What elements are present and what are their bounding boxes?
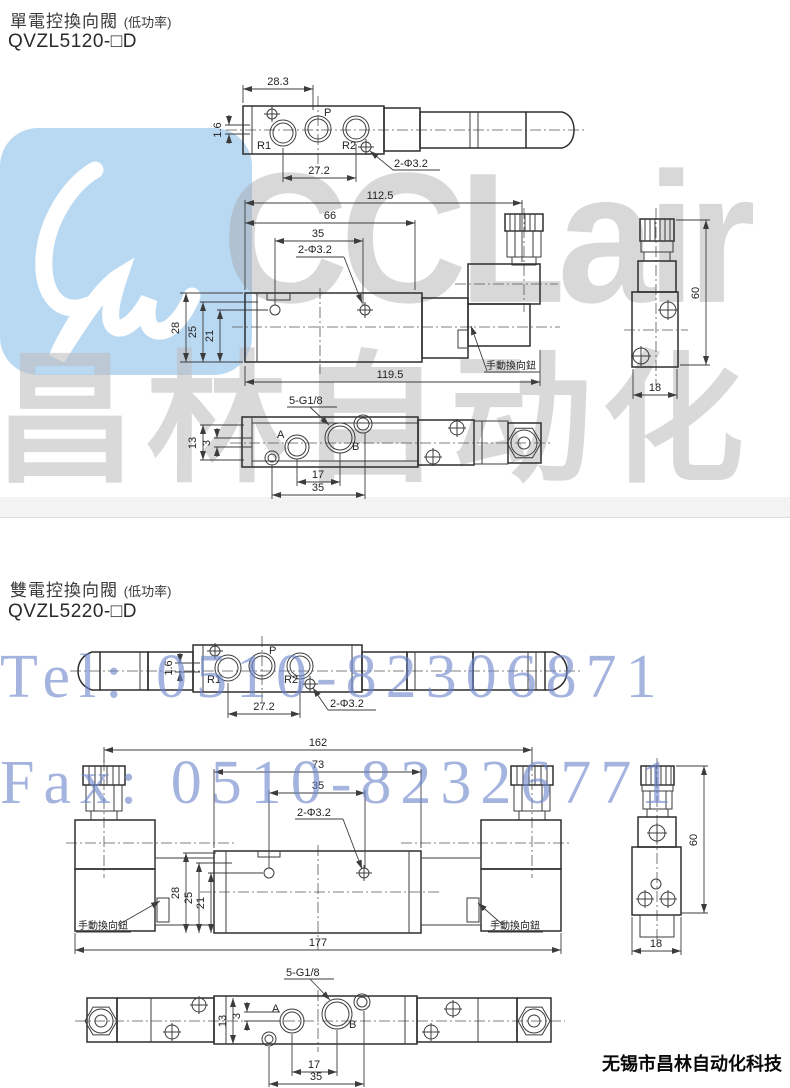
port-label: B [352,441,359,453]
dim-label: 25 [183,892,195,904]
section2-title: 雙電控換向閥 (低功率) [10,576,171,601]
dim-label: 21 [204,330,216,342]
port-label: R2 [342,140,356,152]
callout-label: 5-G1/8 [286,967,320,979]
dim-label: 25 [187,326,199,338]
dim-label: 60 [688,834,700,846]
section1-title: 單電控換向閥 (低功率) [10,7,171,32]
callout-label: 5-G1/8 [289,395,323,407]
port-label: A [272,1003,280,1015]
dim-label: 162 [309,737,327,749]
dim-label: 1.6 [212,122,224,137]
port-label: R1 [257,140,271,152]
dim-label: 35 [310,1071,322,1083]
dim-label: 66 [324,210,336,222]
dim-label: 35 [312,228,324,240]
port-label: B [349,1019,356,1031]
dim-label: 27.2 [308,165,329,177]
dim-label: 35 [312,482,324,494]
dim-label: 3 [231,1013,243,1019]
dim-label: 60 [690,287,702,299]
dim-label: 21 [195,897,207,909]
dim-label: 17 [308,1059,320,1071]
dim-label: 177 [309,937,327,949]
dim-label: 18 [649,382,661,394]
qvzl5120-side-view: 60 18 [624,208,710,399]
qvzl5220-bottom-view: 5-G1/8 13 3 A B 17 35 [75,967,565,1087]
dim-label: 3 [201,440,213,446]
port-label: P [324,107,331,119]
watermark-fax: Fax: 0510-82326771 [0,752,790,814]
dim-label: 13 [217,1015,229,1027]
dim-label: 119.5 [377,369,404,381]
section1-title-text: 單電控換向閥 [10,12,118,31]
port-label: A [277,429,285,441]
section2-model: QVZL5220-□D [8,601,137,623]
section1-model: QVZL5120-□D [8,31,137,53]
dim-label: 18 [650,938,662,950]
dim-label: 28.3 [267,76,288,88]
section2-title-note: (低功率) [124,584,172,599]
callout-label: 2-Φ3.2 [298,244,332,256]
manual-override-label: 手動換向鈕 [486,359,536,372]
section2-title-text: 雙電控換向閥 [10,581,118,600]
manual-override-label: 手動換向鈕 [490,919,540,932]
qvzl5120-front-view: 112.5 66 35 2-Φ3.2 28 25 21 119.5 [170,190,560,386]
dim-label: 28 [170,322,182,334]
technical-drawing: 28.3 1.6 27.2 2-Φ3.2 R1 P R2 [0,0,790,1088]
dim-label: 13 [187,437,199,449]
dim-label: 112.5 [367,190,394,202]
callout-label: 2-Φ3.2 [394,158,428,170]
watermark-tel: Tel: 0510-82306871 [0,646,790,708]
section1-title-note: (低功率) [124,15,172,30]
datasheet-page: CCLair 昌林自动化 Tel: 0510-82306871 Fax: 051… [0,0,790,1088]
qvzl5120-top-view: 28.3 1.6 27.2 2-Φ3.2 R1 P R2 [212,76,584,182]
footer-company: 无锡市昌林自动化科技 [602,1050,782,1076]
manual-override-label: 手動換向鈕 [78,919,128,932]
dim-label: 28 [170,887,182,899]
dim-label: 17 [312,469,324,481]
qvzl5120-bottom-view: 5-G1/8 13 3 A B 17 35 [187,395,552,499]
